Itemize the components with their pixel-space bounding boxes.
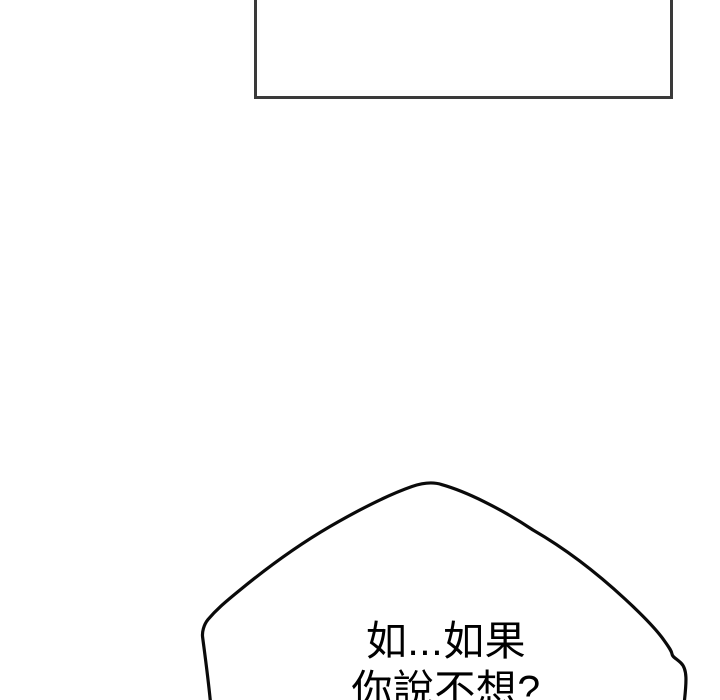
comic-page: 如...如果 你說不想? [0,0,720,700]
speech-bubble [0,0,720,700]
speech-text-line-1: 如...如果 [246,617,646,666]
speech-text-line-2: 你說不想? [246,666,646,700]
speech-bubble-text: 如...如果 你說不想? [246,617,646,700]
